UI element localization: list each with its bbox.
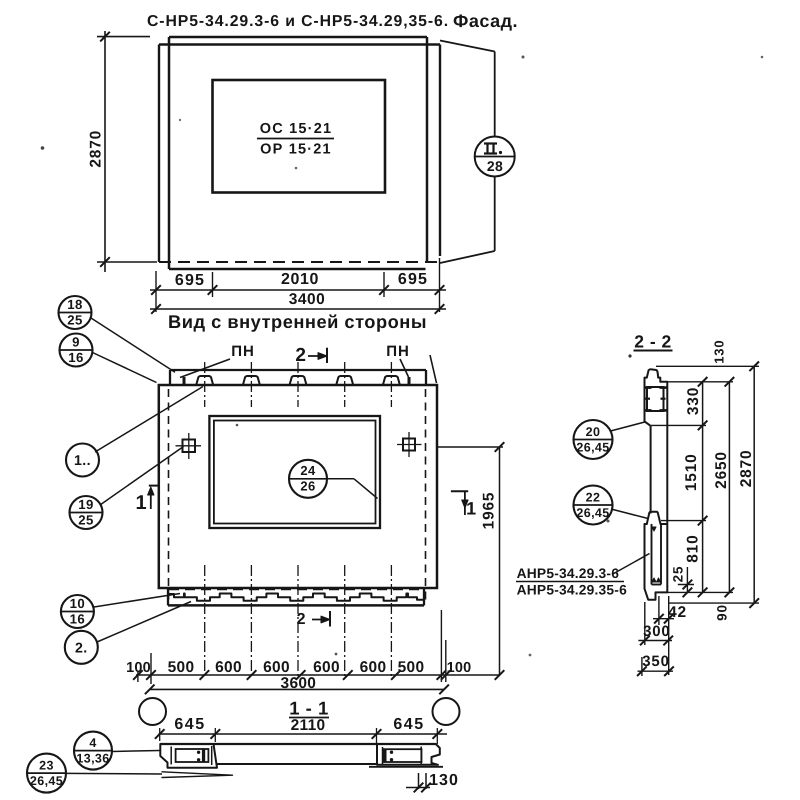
- svg-text:9: 9: [72, 334, 80, 349]
- svg-text:1 - 1: 1 - 1: [289, 698, 329, 719]
- svg-text:2: 2: [295, 345, 306, 366]
- svg-text:645: 645: [393, 716, 424, 733]
- svg-text:22: 22: [586, 490, 601, 504]
- svg-text:350: 350: [642, 653, 669, 670]
- svg-text:42: 42: [668, 604, 687, 621]
- svg-text:695: 695: [175, 272, 205, 289]
- svg-text:1965: 1965: [481, 492, 498, 530]
- svg-text:20: 20: [586, 425, 601, 439]
- svg-text:130: 130: [429, 772, 459, 789]
- svg-text:1: 1: [466, 499, 477, 519]
- svg-text:130: 130: [712, 340, 727, 364]
- svg-text:18: 18: [67, 297, 82, 312]
- svg-text:16: 16: [68, 350, 83, 365]
- svg-text:23: 23: [39, 759, 54, 773]
- svg-text:25: 25: [671, 566, 686, 583]
- svg-text:Вид с внутренней стороны: Вид с внутренней стороны: [168, 311, 427, 332]
- svg-text:330: 330: [685, 387, 702, 415]
- svg-text:1..: 1..: [74, 453, 91, 469]
- svg-text:2.: 2.: [75, 640, 88, 656]
- svg-text:10: 10: [70, 596, 85, 611]
- svg-text:24: 24: [300, 463, 316, 478]
- svg-text:3400: 3400: [289, 291, 325, 308]
- svg-text:645: 645: [174, 716, 205, 733]
- svg-text:26,45: 26,45: [30, 774, 63, 788]
- svg-text:ОС 15·21: ОС 15·21: [260, 121, 332, 137]
- svg-text:С-НР5-34.29.3-6 и С-НР5-34.29,: С-НР5-34.29.3-6 и С-НР5-34.29,35-6.: [147, 13, 449, 30]
- svg-text:600: 600: [263, 659, 290, 676]
- svg-text:600: 600: [360, 659, 387, 676]
- svg-text:2 - 2: 2 - 2: [634, 332, 672, 352]
- svg-text:600: 600: [215, 659, 242, 676]
- svg-text:500: 500: [168, 659, 195, 676]
- svg-text:600: 600: [313, 659, 340, 676]
- svg-text:2110: 2110: [291, 717, 326, 734]
- svg-text:19: 19: [78, 497, 93, 512]
- svg-text:1: 1: [136, 492, 148, 514]
- svg-text:4: 4: [89, 736, 96, 750]
- svg-text:100: 100: [126, 660, 151, 676]
- svg-text:300: 300: [643, 623, 670, 640]
- svg-text:26,45: 26,45: [576, 440, 609, 454]
- svg-text:810: 810: [685, 534, 702, 562]
- svg-text:ОР 15·21: ОР 15·21: [260, 142, 332, 158]
- svg-text:100: 100: [447, 660, 472, 676]
- svg-text:2870: 2870: [88, 130, 105, 168]
- svg-text:Фасад.: Фасад.: [453, 11, 518, 31]
- svg-text:16: 16: [70, 611, 85, 626]
- svg-text:2: 2: [297, 611, 307, 628]
- svg-text:25: 25: [78, 512, 93, 527]
- svg-text:2870: 2870: [738, 450, 755, 488]
- svg-text:ПН: ПН: [386, 343, 410, 360]
- svg-text:26,45: 26,45: [576, 506, 609, 520]
- svg-text:АНР5-34.29.35-6: АНР5-34.29.35-6: [517, 583, 627, 598]
- svg-text:2650: 2650: [713, 451, 730, 489]
- svg-text:ПН: ПН: [231, 343, 255, 360]
- svg-text:1510: 1510: [683, 453, 700, 491]
- svg-text:90: 90: [715, 604, 730, 621]
- svg-text:26: 26: [300, 479, 315, 494]
- svg-text:3600: 3600: [281, 675, 317, 692]
- svg-text:500: 500: [398, 659, 425, 676]
- svg-text:2010: 2010: [281, 271, 319, 288]
- svg-text:АНР5-34.29.3-6: АНР5-34.29.3-6: [517, 566, 620, 581]
- svg-text:25: 25: [67, 312, 82, 327]
- svg-text:695: 695: [398, 271, 428, 288]
- svg-text:28: 28: [487, 158, 503, 174]
- svg-text:13,36: 13,36: [76, 751, 109, 765]
